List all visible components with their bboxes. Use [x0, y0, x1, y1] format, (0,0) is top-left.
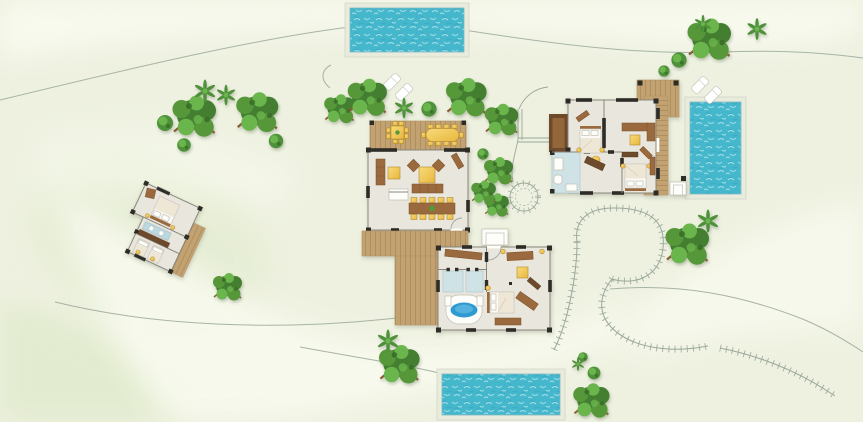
entry-terrace: [549, 114, 568, 152]
door-opening: [657, 138, 660, 152]
bush-icon: [588, 367, 601, 380]
bath-cabinet: [445, 296, 451, 306]
site-plan: [0, 0, 863, 422]
sink: [554, 158, 563, 170]
bathtub: [446, 295, 482, 324]
deck-post: [370, 121, 375, 126]
deck-post: [681, 176, 686, 181]
table-plant: [395, 130, 399, 134]
bath-cabinet: [477, 296, 483, 306]
lamp: [486, 286, 491, 291]
bed: [580, 126, 601, 153]
armchair: [145, 188, 156, 199]
deck-walk-column: [395, 256, 438, 325]
lamp: [577, 148, 581, 152]
column: [509, 282, 512, 285]
deck-post: [462, 121, 467, 126]
bush-icon: [269, 134, 283, 148]
sofa: [647, 123, 655, 141]
pool-top-water: [350, 8, 464, 52]
ottoman: [517, 267, 528, 278]
table-plant: [429, 206, 435, 212]
lamp: [501, 249, 506, 254]
toilet: [554, 175, 562, 184]
bath-room: [443, 271, 463, 292]
dresser: [507, 251, 533, 260]
door-opening: [487, 246, 501, 249]
lounge-chair: [388, 167, 400, 179]
sofa: [622, 123, 648, 131]
pool-bottom: [437, 369, 565, 420]
bush-icon: [177, 138, 191, 152]
bush-icon: [658, 65, 669, 76]
bed: [625, 164, 646, 191]
pool-top: [345, 3, 469, 57]
pool-right: [685, 97, 746, 199]
indoor-dining-table: [409, 198, 455, 220]
bush-icon: [421, 101, 436, 116]
pool-right-water: [690, 102, 741, 194]
sofa: [412, 184, 443, 193]
sideboard: [376, 159, 385, 185]
side-table: [630, 135, 640, 145]
entry-steps: [482, 229, 508, 245]
pool-bottom-water: [442, 374, 560, 415]
tv-bench: [622, 152, 638, 157]
wardrobe: [650, 157, 655, 175]
lamp: [600, 148, 604, 152]
deck-post: [638, 81, 643, 86]
site-plan-canvas: [0, 0, 863, 422]
bed: [487, 292, 514, 313]
bush-icon: [578, 352, 588, 362]
lamp: [621, 164, 625, 168]
deck-post: [674, 81, 679, 86]
bush-icon: [157, 115, 173, 131]
bush-icon: [477, 148, 488, 159]
shower: [566, 184, 577, 191]
lounge-sofa: [419, 167, 435, 183]
shower-room: [466, 271, 483, 292]
foot-bench: [495, 318, 521, 325]
bush-icon: [671, 52, 686, 67]
coffee-table: [389, 189, 408, 200]
lamp: [540, 249, 545, 254]
